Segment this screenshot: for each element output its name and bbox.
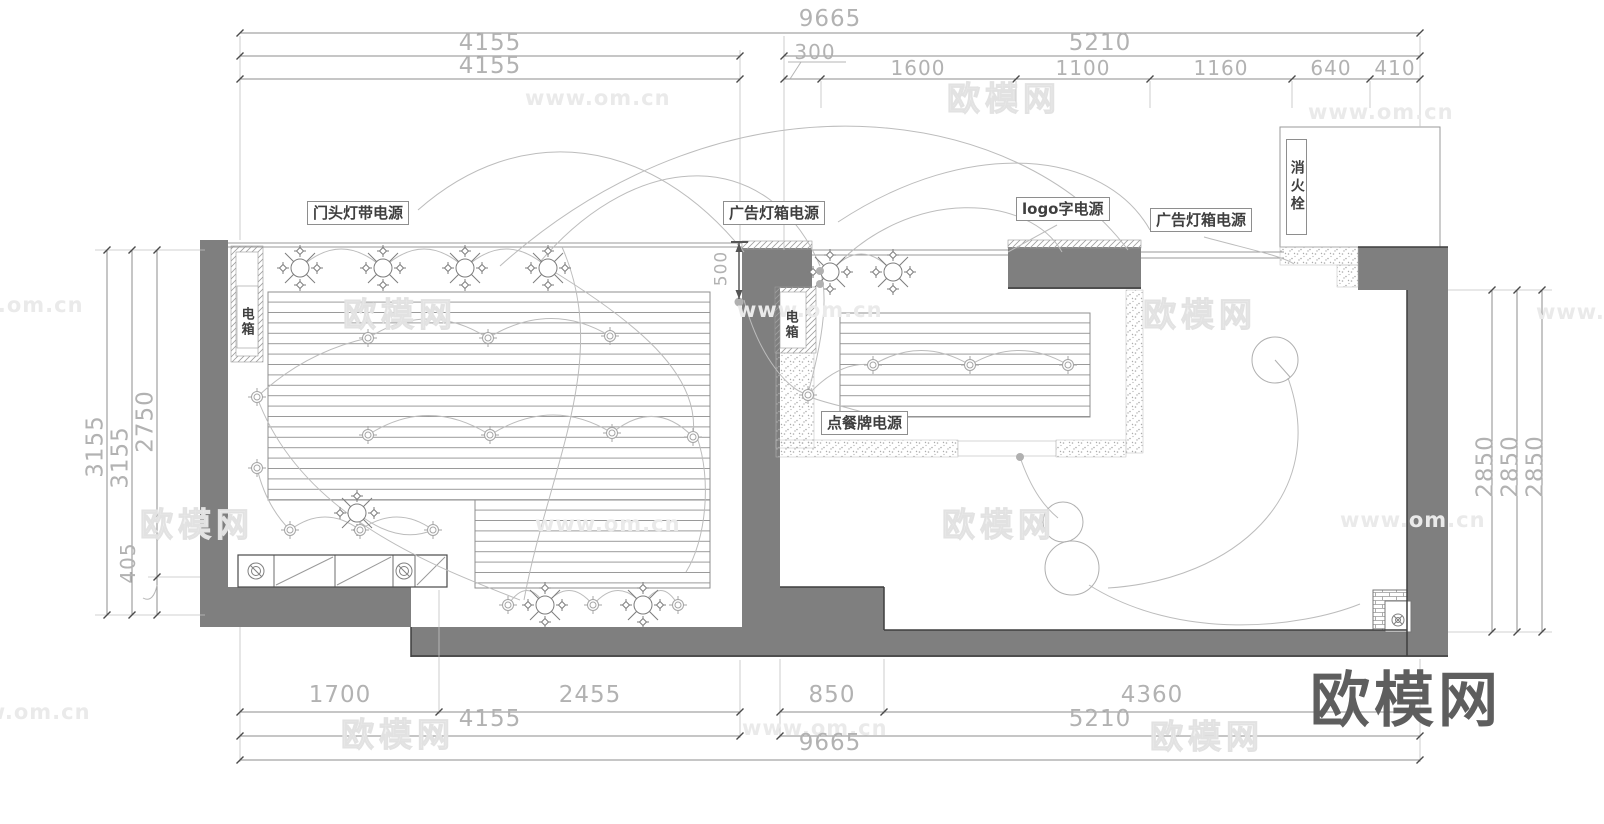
dim-bot-2455: 2455	[545, 684, 635, 707]
floor-plan-page: www.om.cn 欧模网 www.om.cn www.om.cn 欧模网 ww…	[0, 0, 1604, 824]
site-logo: 欧模网	[1310, 652, 1502, 739]
dim-left-405: 405	[118, 528, 138, 598]
striped-ceiling	[268, 292, 1090, 588]
dim-top-4155a: 4155	[445, 32, 535, 55]
dim-top-640: 640	[1296, 58, 1366, 78]
label-door-strip-power: 门头灯带电源	[307, 201, 409, 225]
label-electric-box-2: 电箱	[781, 295, 799, 355]
label-ad-lightbox-power-2: 广告灯箱电源	[1150, 208, 1252, 232]
dim-leader-405	[143, 585, 157, 599]
dim-left-2750: 2750	[135, 377, 158, 467]
dim-right-2850b: 2850	[1500, 422, 1523, 512]
service-counter	[238, 555, 447, 587]
label-fire-hydrant: 消火栓	[1286, 139, 1307, 235]
dim-top-1100: 1100	[1048, 58, 1118, 78]
fire-hydrant-symbol	[1373, 590, 1411, 632]
dim-right-2850c: 2850	[1525, 422, 1548, 512]
dim-bot-850: 850	[787, 684, 877, 707]
dim-bot-4155: 4155	[445, 708, 535, 731]
label-ad-lightbox-power-1: 广告灯箱电源	[723, 201, 825, 225]
dim-left-3155a: 3155	[85, 402, 108, 492]
dim-top-300: 300	[780, 42, 850, 62]
label-logo-sign-power: logo字电源	[1016, 197, 1110, 221]
dim-bot-1700: 1700	[295, 684, 385, 707]
dim-storefront-500: 500	[714, 234, 731, 304]
dim-top-1600: 1600	[883, 58, 953, 78]
dim-bot-5210: 5210	[1055, 708, 1145, 731]
dim-top-5210: 5210	[1055, 32, 1145, 55]
label-electric-box-1: 电箱	[237, 290, 255, 354]
dim-top-410: 410	[1360, 58, 1430, 78]
dim-bot-overall: 9665	[785, 732, 875, 755]
dim-left-3155b: 3155	[110, 413, 133, 503]
dim-top-4155b: 4155	[445, 55, 535, 78]
dim-right-2850a: 2850	[1475, 422, 1498, 512]
label-order-board-power: 点餐牌电源	[821, 411, 908, 435]
dim-bot-4360: 4360	[1107, 684, 1197, 707]
dim-leader-300	[788, 62, 846, 79]
dim-top-1160: 1160	[1186, 58, 1256, 78]
dim-top-overall: 9665	[785, 8, 875, 31]
